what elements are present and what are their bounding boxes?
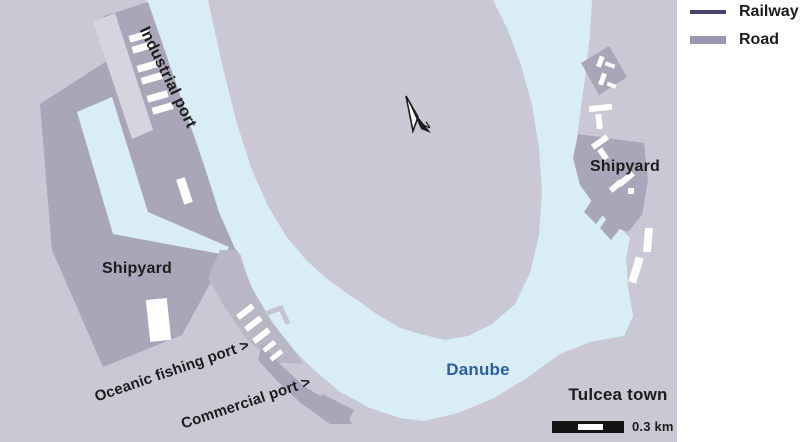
scale-bar-label: 0.3 km [632, 419, 674, 434]
town-label: Tulcea town [568, 385, 667, 405]
legend: Railway Road [690, 2, 798, 58]
river-label: Danube [446, 360, 510, 380]
building [146, 298, 171, 342]
map-canvas [0, 0, 677, 442]
legend-railway-label: Railway [739, 3, 799, 21]
legend-item-railway: Railway [690, 2, 798, 22]
legend-road-label: Road [739, 31, 779, 49]
shipyard-right-label: Shipyard [590, 158, 660, 176]
road-band-swatch [690, 36, 726, 44]
map-page: Industrial port Shipyard Shipyard Oceani… [0, 0, 800, 442]
railway-line-swatch [690, 10, 726, 14]
scale-bar [552, 421, 624, 433]
legend-item-road: Road [690, 30, 798, 50]
building [628, 188, 634, 194]
shipyard-left-label: Shipyard [102, 260, 172, 278]
